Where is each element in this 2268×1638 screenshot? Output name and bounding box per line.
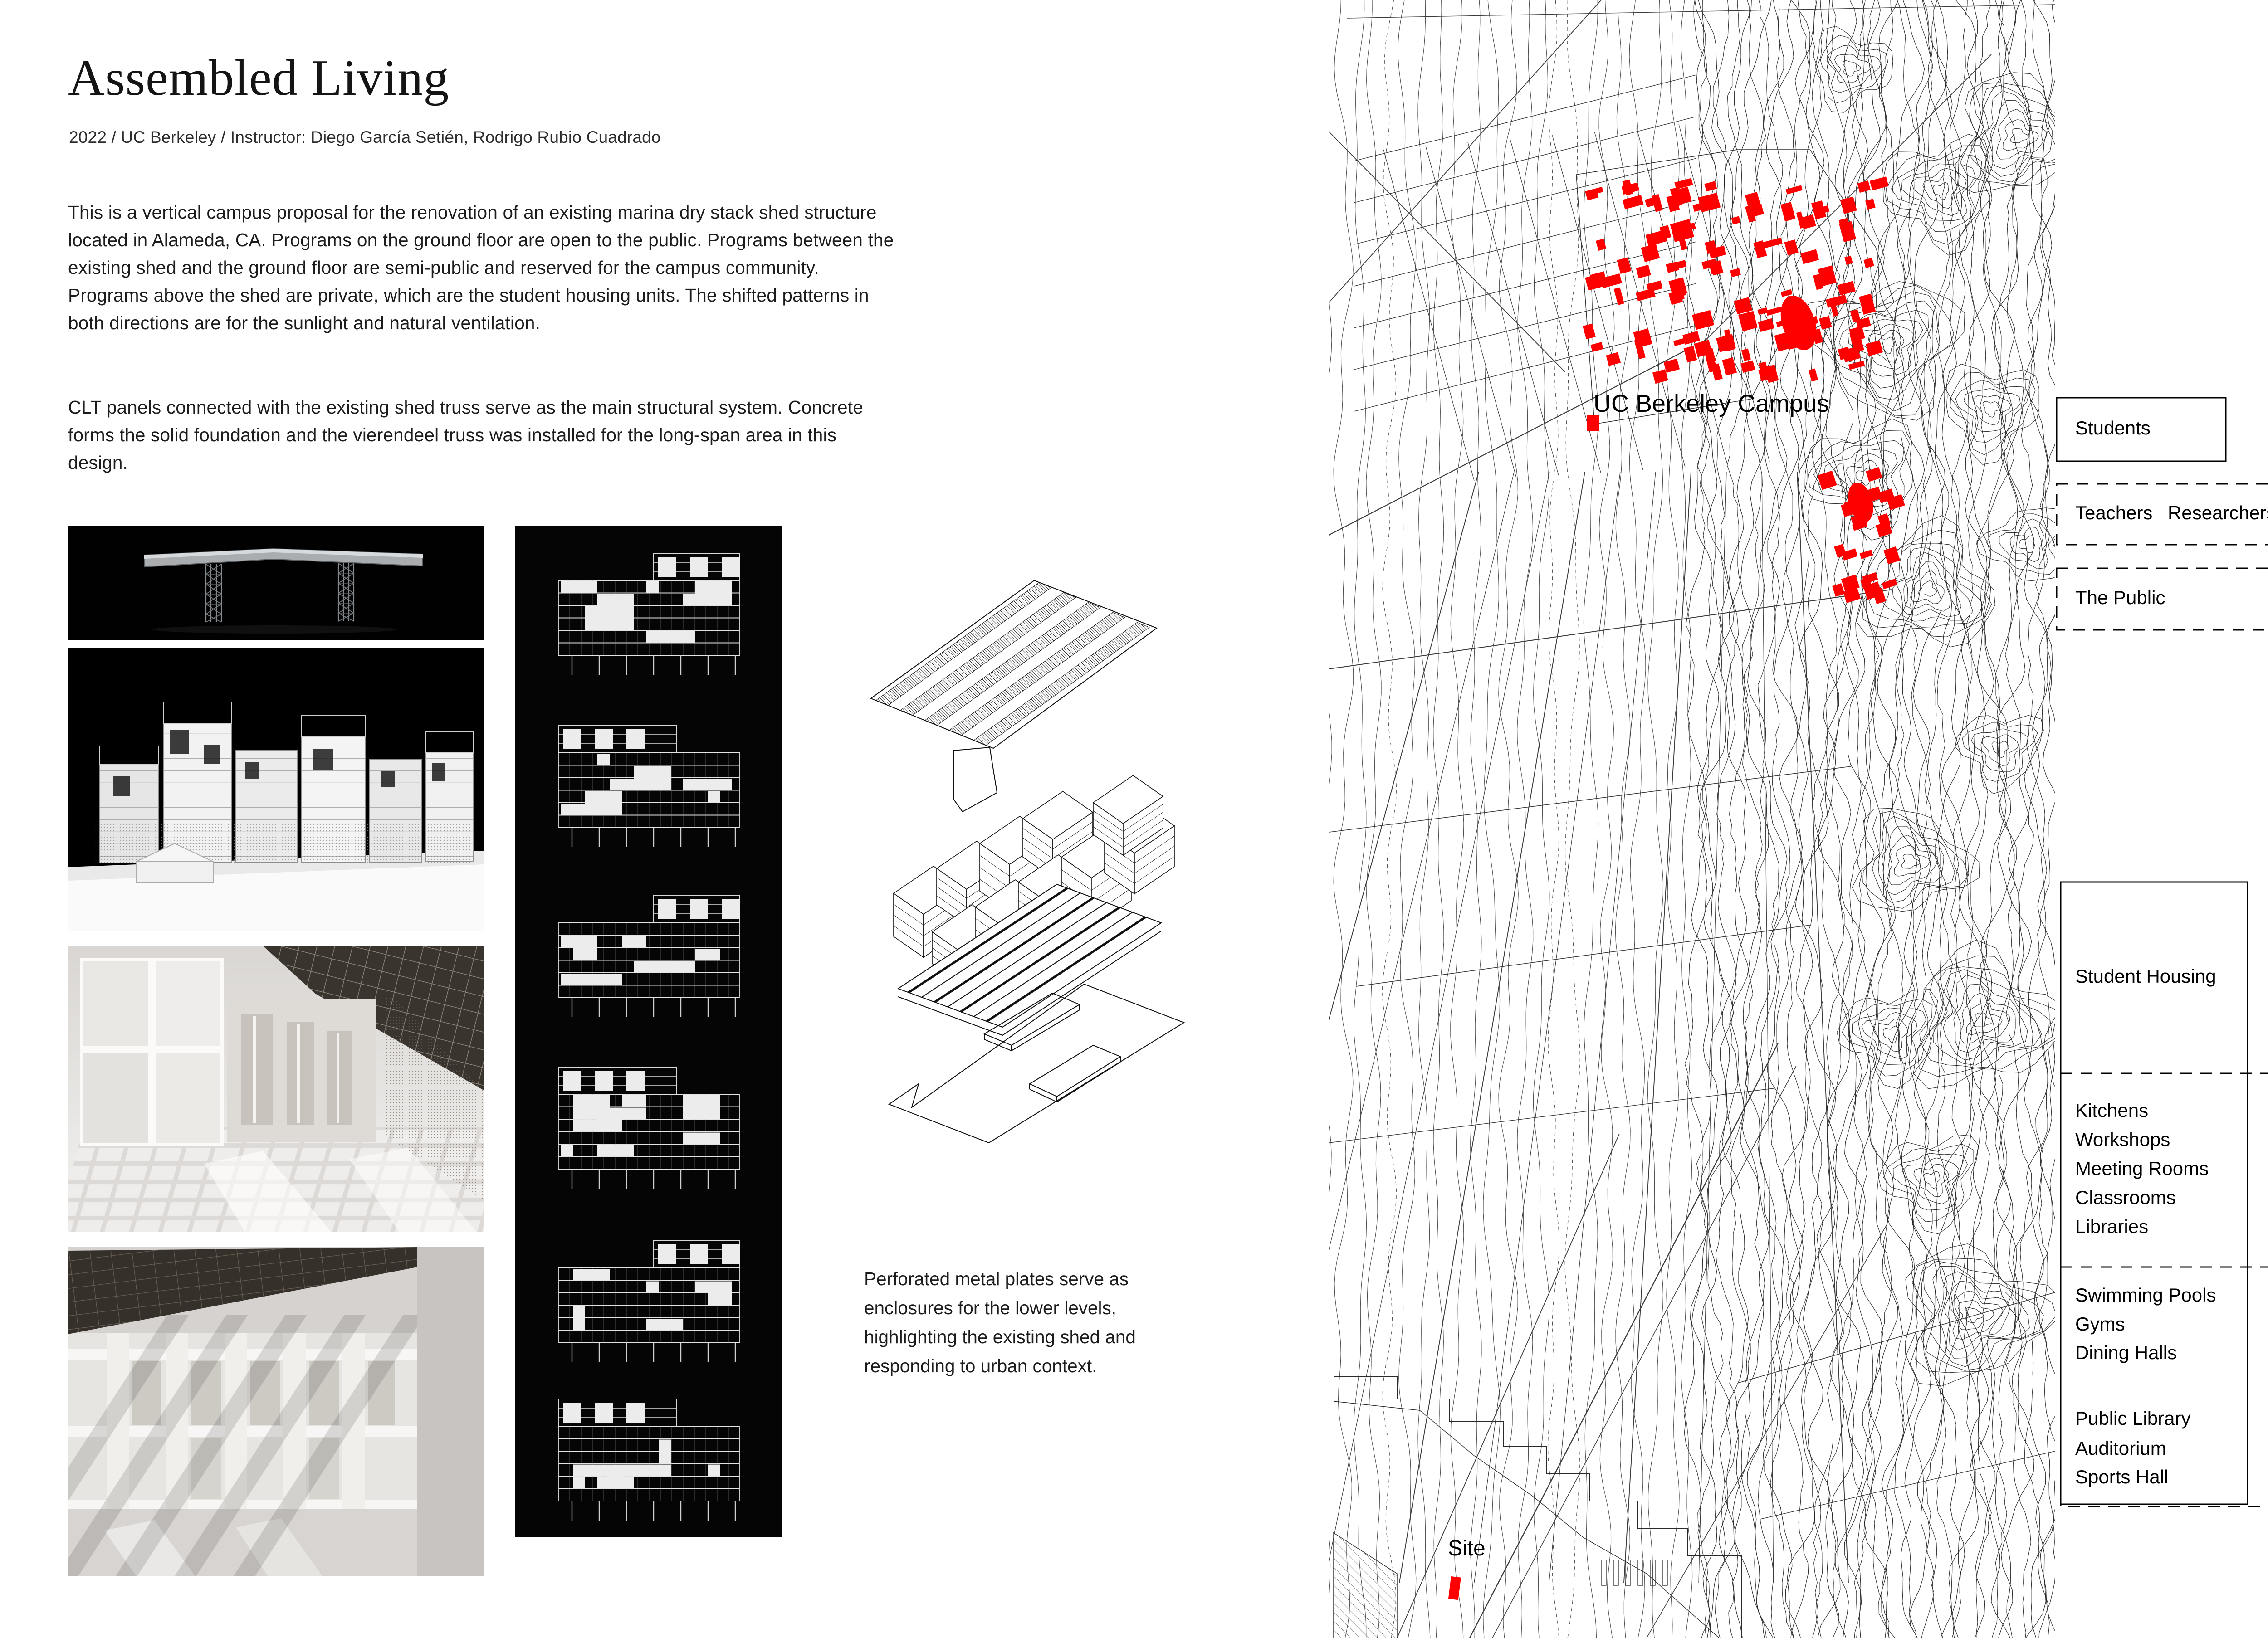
legend-label-researchers: Researchers: [2168, 502, 2268, 523]
truss-render-graphic: [68, 526, 484, 640]
legend-label-libraries: Libraries: [2075, 1216, 2148, 1237]
map-generated: [1329, 0, 2055, 1638]
axon-roof-diagram: [871, 580, 1157, 812]
legend-label-meeting-rooms: Meeting Rooms: [2075, 1158, 2209, 1179]
legend-label-auditorium: Auditorium: [2075, 1438, 2166, 1459]
figure-caption: Perforated metal plates serve as enclosu…: [864, 1264, 1159, 1380]
legend-label-sports-hall: Sports Hall: [2075, 1466, 2168, 1487]
portfolio-page: Assembled Living 2022 / UC Berkeley / In…: [0, 0, 2268, 1638]
legend-label-dining-halls: Dining Halls: [2075, 1342, 2177, 1363]
elevation-strip-canvas: [515, 526, 782, 1537]
legend-label-workshops: Workshops: [2075, 1129, 2170, 1150]
housing-render-graphic: [68, 648, 484, 931]
section-render-graphic: [68, 1247, 484, 1576]
interior-render-graphic: [68, 946, 484, 1232]
legend-label-student-housing: Student Housing: [2075, 965, 2216, 987]
legend-label-public-library: Public Library: [2075, 1408, 2190, 1429]
axon-diagrams: [839, 522, 1202, 1202]
legend-label-teachers: Teachers: [2075, 502, 2152, 523]
figure-interior-render: [68, 946, 484, 1232]
axon-plan-diagram: [889, 984, 1184, 1143]
page-subtitle: 2022 / UC Berkeley / Instructor: Diego G…: [69, 128, 661, 147]
legend-label-kitchens: Kitchens: [2075, 1100, 2148, 1121]
legend-label-students: Students: [2075, 417, 2151, 439]
description-paragraph-2: CLT panels connected with the existing s…: [68, 394, 898, 477]
figure-truss-render: [68, 526, 484, 640]
legend-label-gyms: Gyms: [2075, 1313, 2125, 1335]
elevation-strip-generated: [558, 553, 740, 1521]
site-label: Site: [1448, 1536, 1486, 1560]
figure-section-render: [68, 1247, 484, 1576]
site-map-canvas: UC Berkeley Campus Site: [1329, 0, 2055, 1638]
campus-label: UC Berkeley Campus: [1593, 390, 1829, 417]
figure-elevation-strip: [515, 526, 782, 1537]
program-legend: Students Teachers Researchers The Public…: [2041, 385, 2268, 1546]
legend-label-swimming-pools: Swimming Pools: [2075, 1284, 2216, 1306]
site-map: UC Berkeley Campus Site: [1329, 0, 2055, 1638]
legend-label-classrooms: Classrooms: [2075, 1187, 2176, 1208]
page-title: Assembled Living: [68, 49, 449, 107]
figure-housing-render: [68, 648, 484, 931]
description-paragraph-1: This is a vertical campus proposal for t…: [68, 199, 898, 337]
legend-label-the-public: The Public: [2075, 587, 2165, 608]
